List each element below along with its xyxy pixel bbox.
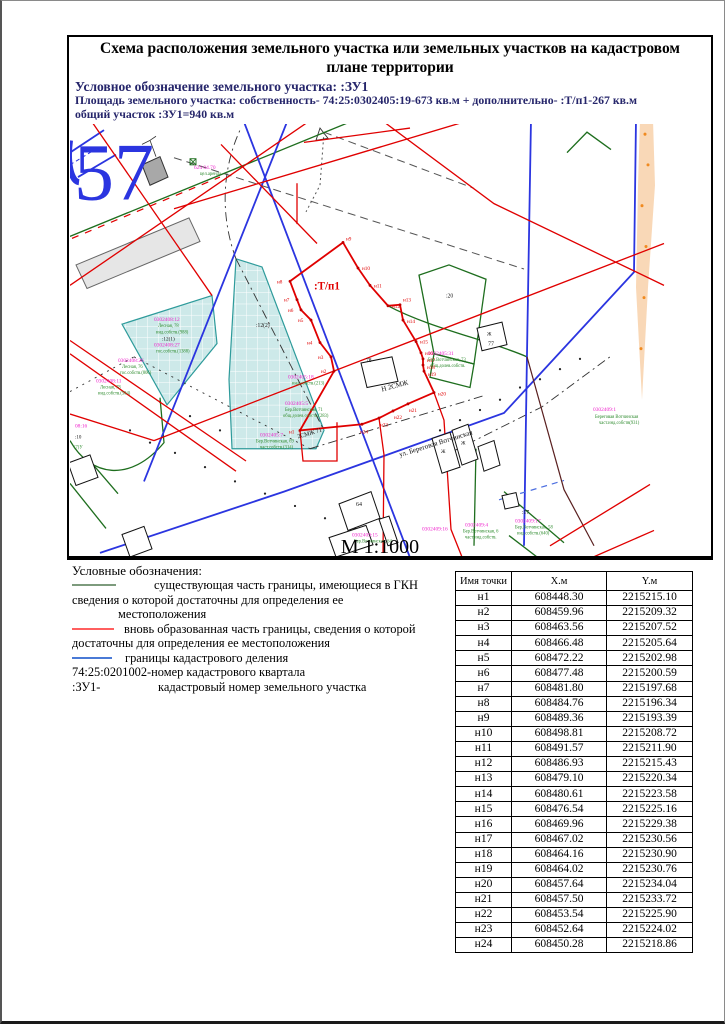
boundary-point: [330, 355, 333, 358]
scale-label: М 1:1000: [341, 536, 419, 557]
parcel-sublabel: Бер.Вотчинская, 6: [463, 529, 499, 534]
cadastral-map: 57 :Т/п1 624 04.70 цел.аренда 0302408:12…: [70, 124, 711, 557]
boundary-point: [402, 319, 405, 322]
boundary-point-label: н4: [307, 341, 313, 347]
table-row: н3608463.562215207.52: [456, 621, 693, 636]
boundary-point-label: н18: [427, 365, 435, 371]
boundary-point: [407, 402, 410, 405]
coordinates-table: Имя точки X.м Y.м н1608448.302215215.10н…: [455, 571, 693, 953]
parcel-label: 0302408:12: [154, 317, 180, 323]
legend-item-new: вновь образованная часть границы, сведен…: [72, 622, 457, 637]
total-area-line: общий участок :ЗУ1=940 кв.м: [75, 108, 711, 122]
boundary-point: [289, 280, 292, 283]
area-line: Площадь земельного участка: собственност…: [75, 94, 711, 108]
plot-label: :Т/п1: [314, 280, 340, 292]
boundary-point-label: н3: [318, 355, 324, 361]
parcel-sublabel: общ.долев.собств.: [430, 364, 465, 369]
building-label: Ж: [487, 331, 492, 337]
table-row: н23608452.642215224.02: [456, 923, 693, 938]
col-header-x: X.м: [512, 572, 607, 591]
legend-text: достаточны для определения ее местополож…: [72, 636, 457, 651]
parcel-label: 0302405:7: [260, 432, 283, 438]
building-label: 64: [356, 502, 362, 508]
boundary-point: [378, 417, 381, 420]
parcel-sublabel: Береговая Вотчинская: [595, 415, 639, 420]
parcel-sublabel: част.инд.собств(931): [599, 421, 640, 426]
parcel-sublabel: цел.аренда: [200, 172, 221, 177]
parcel-sublabel: инд.собств.(504): [98, 392, 131, 397]
boundary-point: [387, 304, 390, 307]
boundary-point: [300, 308, 303, 311]
parcel-sublabel: Бер.Вотчинская, 58: [515, 525, 553, 530]
table-row: н15608476.542215225.16: [456, 802, 693, 817]
parcel-sublabel: Бер.Вотчинская, 69: [256, 440, 294, 445]
boundary-point: [296, 298, 299, 301]
table-row: н12608486.932215215.43: [456, 757, 693, 772]
col-header-y: Y.м: [607, 572, 693, 591]
table-row: н13608479.102215220.34: [456, 772, 693, 787]
parcel-label: 0302405:18: [288, 374, 314, 380]
boundary-point: [433, 391, 436, 394]
boundary-point-label: н23: [380, 422, 388, 428]
boundary-point: [420, 351, 423, 354]
boundary-point-label: н21: [409, 408, 417, 414]
parcel-label: :20: [446, 294, 453, 300]
table-row: н6608477.482215200.59: [456, 666, 693, 681]
table-row: н4608466.482215205.64: [456, 636, 693, 651]
boundary-point-label: н2: [321, 369, 327, 375]
boundary-point-label: н19: [428, 372, 436, 378]
legend-text: местоположения: [118, 607, 457, 622]
parcel-sublabel: гос.собств.(806): [120, 371, 152, 376]
boundary-point: [357, 267, 360, 270]
table-row: н17608467.022215230.56: [456, 832, 693, 847]
boundary-point-label: н24: [360, 429, 368, 435]
table-header-row: Имя точки X.м Y.м: [456, 572, 693, 591]
map-frame: Схема расположения земельного участка ил…: [67, 35, 713, 560]
boundary-point: [399, 303, 402, 306]
parcel-sublabel: гос.собств.(1388): [156, 350, 190, 355]
parcel-sublabel: (7)У: [74, 446, 83, 451]
table-row: н10608498.812215208.72: [456, 726, 693, 741]
boundary-point-label: н22: [394, 415, 402, 421]
boundary-point-label: н14: [407, 319, 415, 325]
parcel-label: 0302409:4: [465, 522, 488, 528]
boundary-point: [342, 241, 345, 244]
parcel-label: 0302409:17: [515, 518, 541, 524]
teal-parcel-right: [229, 259, 324, 449]
boundary-point-label: н20: [438, 392, 446, 398]
page: Схема расположения земельного участка ил…: [0, 0, 725, 1024]
boundary-point-label: н10: [362, 266, 370, 272]
boundary-point-label: н6: [288, 308, 294, 314]
boundary-point-label: н13: [403, 298, 411, 304]
parcel-sublabel: инд.собств.(213): [292, 381, 325, 386]
legend-text: сведения о которой достаточны для опреде…: [72, 593, 457, 608]
survey-dashed-lines: [174, 132, 524, 269]
parcel-sublabel: Лесная, 78: [100, 385, 121, 390]
boundary-point: [310, 319, 313, 322]
legend: Условные обозначения: существующая часть…: [72, 563, 457, 694]
table-row: н11608491.572215211.90: [456, 741, 693, 756]
table-row: н24608450.282215218.86: [456, 938, 693, 953]
table-row: н16608469.962215229.38: [456, 817, 693, 832]
boundary-point: [392, 410, 395, 413]
parcel-label: 624 04.70: [194, 165, 216, 171]
boundary-point: [333, 370, 336, 373]
table-row: н7608481.802215197.68: [456, 681, 693, 696]
orange-zone: [636, 124, 655, 400]
boundary-point-label: н15: [420, 340, 428, 346]
parcel-label: 0302408:26: [118, 358, 144, 364]
table-row: н18608464.162215230.90: [456, 847, 693, 862]
legend-item-division: границы кадастрового деления: [72, 651, 457, 666]
boundary-point-label: н7: [284, 298, 290, 304]
table-row: н21608457.502215233.72: [456, 892, 693, 907]
page-title: Схема расположения земельного участка ил…: [87, 40, 693, 78]
boundary-point: [319, 341, 322, 344]
table-row: н1608448.302215215.10: [456, 591, 693, 606]
legend-plot-line: :ЗУ1-кадастровый номер земельного участк…: [72, 680, 457, 695]
building-label: Ж: [461, 441, 466, 447]
boundary-point: [369, 284, 372, 287]
long-gray-building: [76, 218, 200, 288]
col-header-point: Имя точки: [456, 572, 512, 591]
table-row: н5608472.222215202.98: [456, 651, 693, 666]
boundary-point-label: н17: [427, 358, 435, 364]
designation-line: Условное обозначение земельного участка:…: [75, 79, 711, 95]
boundary-point-label: н1: [289, 429, 295, 435]
parcel-sublabel: инд.собств.(640): [517, 532, 550, 537]
parcel-sublabel: Лесная, 78: [158, 324, 179, 329]
parcel-sublabel: общ.долев.собств.(283): [283, 414, 329, 419]
boundary-point-label: н5: [298, 318, 304, 324]
parcel-label: 0302408:11: [96, 378, 122, 384]
parcel-sublabel: Бер.Вотчинская, 71: [285, 408, 323, 413]
blue-line-swatch: [72, 657, 112, 659]
parcel-label: 0302408:27: [154, 343, 180, 349]
table-row: н2608459.962215209.32: [456, 606, 693, 621]
parcel-label: :17: [522, 510, 529, 516]
building-label: 78: [366, 358, 372, 364]
table-row: н9608489.362215193.39: [456, 711, 693, 726]
parcel-label: 0302409:16: [422, 526, 448, 532]
boundary-point: [415, 340, 418, 343]
table-row: н14608480.612215223.58: [456, 787, 693, 802]
parcel-label: :12(2): [256, 322, 270, 329]
parcel-sublabel: част.инд.собств.: [465, 536, 497, 541]
boundary-point-label: н16: [425, 351, 433, 357]
quarter-big-number: 57: [74, 128, 154, 218]
boundary-point: [361, 423, 364, 426]
triangle-symbol: [316, 128, 328, 140]
legend-quarter-line: 74:25:0201002-номер кадастрового квартал…: [72, 665, 457, 680]
boundary-point: [422, 357, 425, 360]
legend-heading: Условные обозначения:: [72, 563, 457, 578]
boundary-point-label: н9: [346, 236, 352, 242]
red-line-swatch: [72, 628, 114, 630]
parcel-sublabel: инд.собств.(988): [156, 330, 189, 335]
boundary-point-label: н11: [374, 283, 382, 289]
coords-tbody: н1608448.302215215.10н2608459.962215209.…: [456, 591, 693, 953]
boundary-point: [423, 370, 426, 373]
boundary-point: [299, 429, 302, 432]
parcel-sublabel: част.собств.(314): [260, 446, 294, 451]
legend-item-existing: существующая часть границы, имеющиеся в …: [72, 578, 457, 593]
parcel-label: :10: [75, 434, 82, 440]
building-label: Ж: [441, 449, 446, 455]
table-row: н8608484.762215196.34: [456, 696, 693, 711]
boundary-point: [422, 364, 425, 367]
parcel-sublabel: Лесная, 76: [122, 365, 143, 370]
table-row: н19608464.022215230.76: [456, 862, 693, 877]
table-row: н20608457.642215234.04: [456, 877, 693, 892]
green-line-swatch: [72, 584, 116, 586]
parcel-label: 0302409:1: [593, 407, 616, 413]
boundary-point-label: н8: [277, 279, 283, 285]
table-row: н22608453.542215225.90: [456, 907, 693, 922]
parcel-label: 08:16: [75, 423, 88, 429]
building-label: 77: [488, 342, 494, 348]
parcel-label: 0302405:5: [285, 401, 308, 407]
parcel-label: :12(1): [162, 335, 175, 342]
